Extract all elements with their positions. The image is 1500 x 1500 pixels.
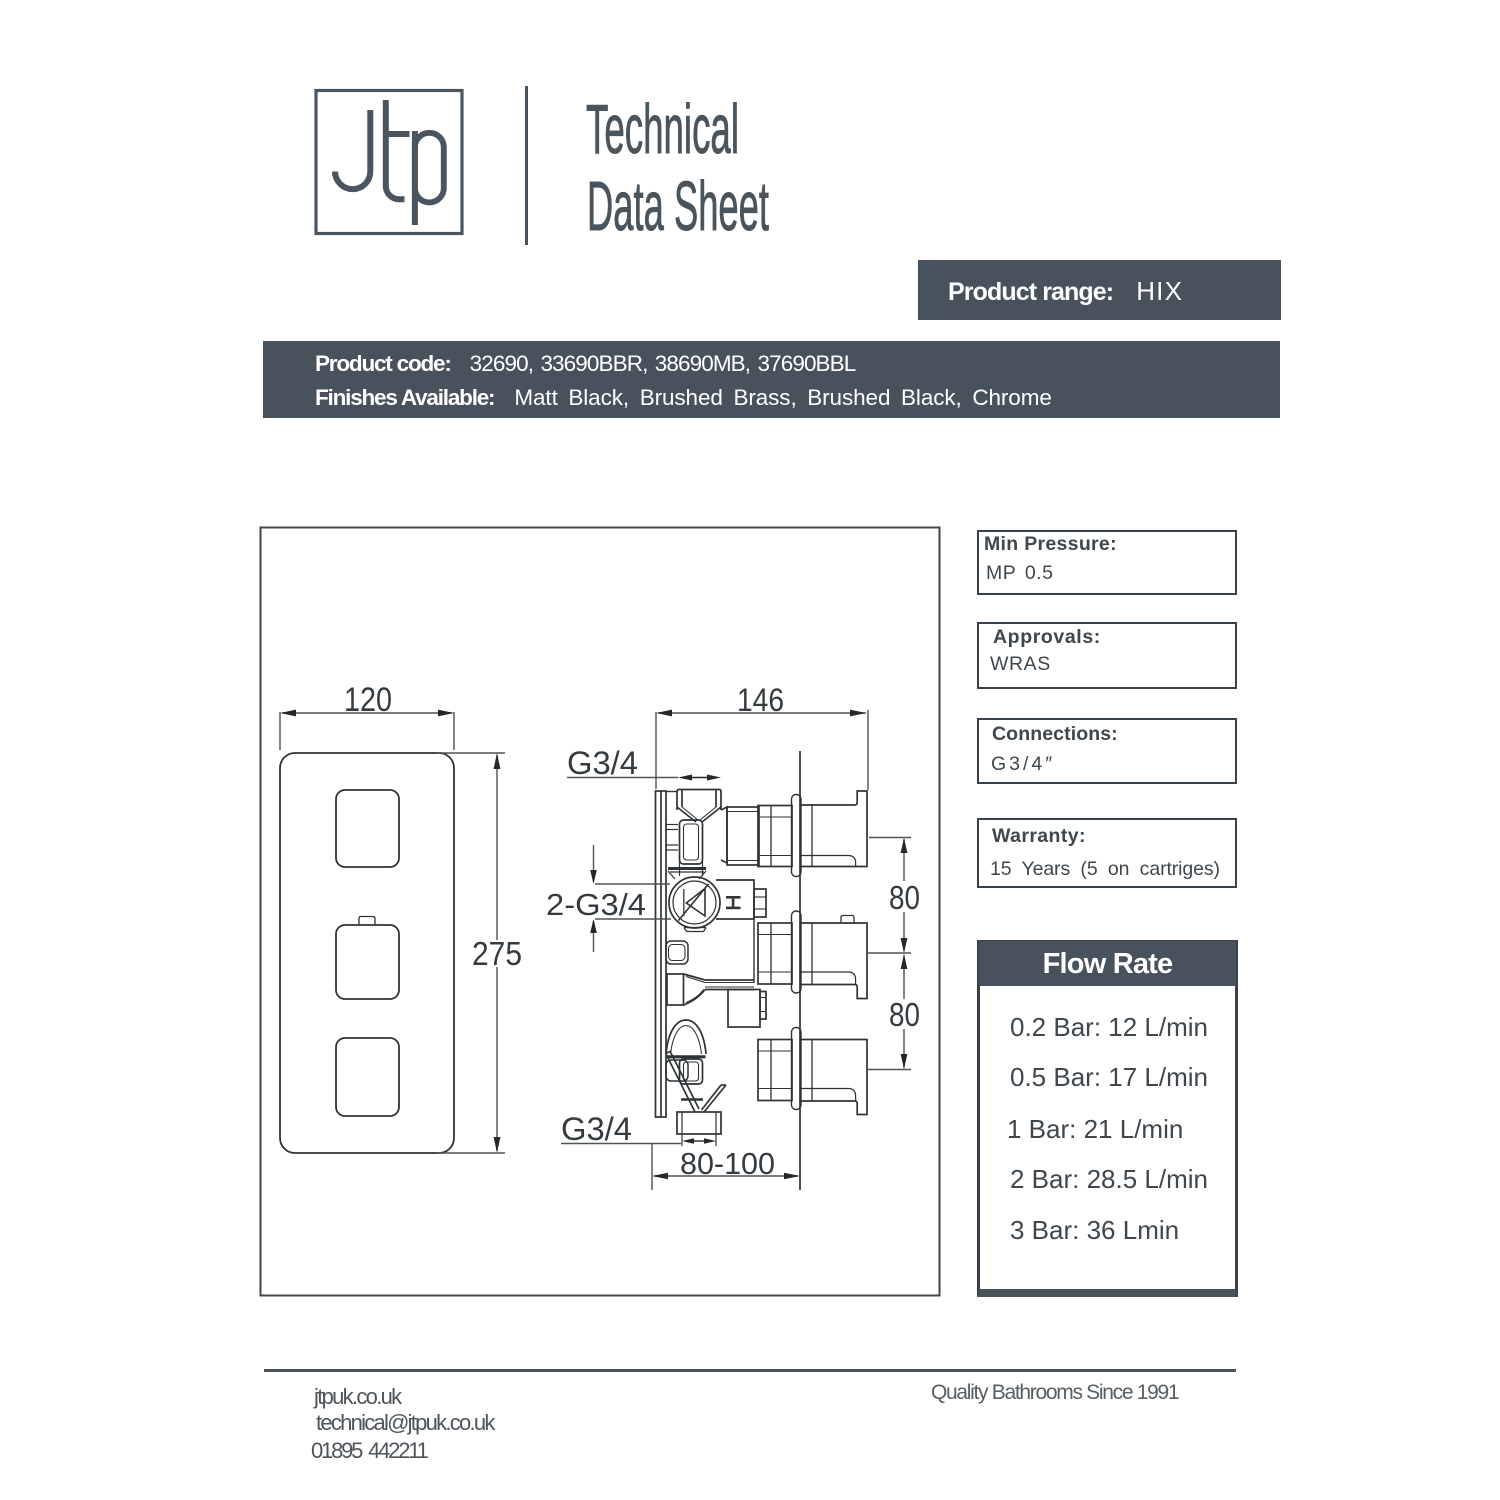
svg-text:146: 146 [737, 682, 784, 718]
svg-text:2-G3/4: 2-G3/4 [546, 888, 646, 922]
svg-text:80-100: 80-100 [680, 1147, 775, 1181]
svg-text:120: 120 [344, 681, 392, 719]
svg-text:80: 80 [889, 879, 920, 916]
svg-text:275: 275 [472, 935, 522, 972]
svg-text:G3/4: G3/4 [561, 1111, 632, 1147]
svg-text:G3/4: G3/4 [567, 745, 638, 781]
svg-text:80: 80 [889, 996, 920, 1033]
